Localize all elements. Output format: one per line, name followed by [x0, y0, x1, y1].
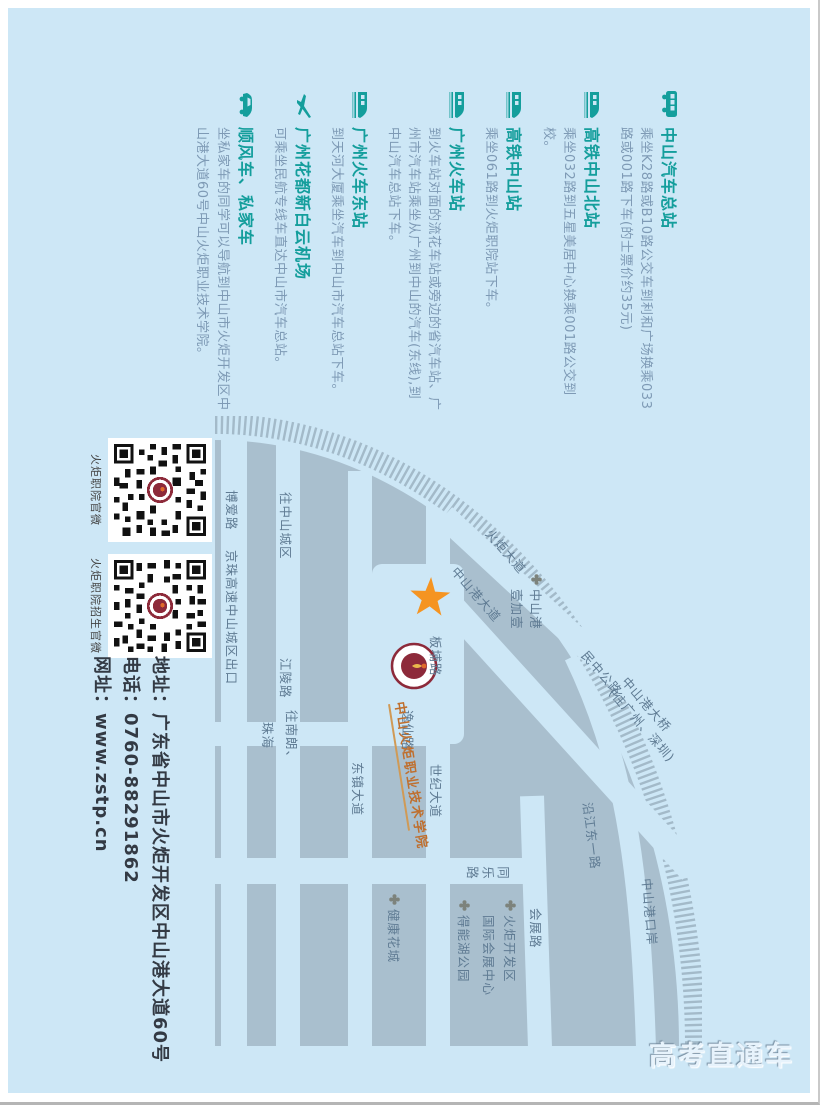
- transport-title: 广州火车东站: [349, 127, 373, 229]
- contact-website: 网址：www.zstp.cn: [87, 656, 116, 1076]
- street-label: 板埔路: [427, 636, 446, 677]
- transport-desc: 乘坐032路到五星美居中心换乘001路公交到校。: [537, 127, 577, 412]
- transport-title: 广州火车站: [446, 127, 470, 212]
- transport-title: 广州花都新白云机场: [292, 127, 316, 280]
- poi-yijiayi: 中山港 壹加壹: [508, 574, 546, 630]
- transport-section: 广州火车站 到火车站对面的流花车站或旁边的省汽车站、广州市汽车站乘坐从广州到中山…: [383, 90, 470, 412]
- transport-title: 高铁中山北站: [581, 127, 605, 229]
- poi-icon: [459, 900, 470, 911]
- poi-health-flower-city: 健康花城: [385, 894, 404, 963]
- poi-label: 得能湖公园: [455, 915, 474, 983]
- qr-label: 火炬职院官微: [88, 438, 104, 542]
- train-icon: [448, 90, 468, 120]
- street-label: 东镇大道: [349, 762, 368, 816]
- poi-label: 健康花城: [385, 909, 404, 963]
- poi-label: 壹加壹: [508, 589, 527, 630]
- transport-section: 顺风车、私家车 坐私家车的同学可以导航到中山市火炬开发区中山港大道60号中山火炬…: [191, 90, 258, 412]
- street-direction-label: 往中山城区: [277, 492, 296, 560]
- qr-item: 火炬职院招生官微: [88, 554, 212, 658]
- street-label: 会展路: [527, 908, 546, 949]
- train-icon: [351, 90, 371, 120]
- qr-codes: 火炬职院官微: [88, 438, 212, 658]
- brochure-page: 中山汽车总站 乘坐K28路或B10路公交车到利和广场换乘033路或001路下车(…: [0, 0, 820, 1105]
- transport-desc: 可乘坐民航专线车直达中山市汽车总站。: [269, 127, 289, 412]
- poi-denenghu-park: 得能湖公园: [455, 900, 474, 983]
- qr-code-admissions-weixin: [108, 554, 212, 658]
- train-icon: [583, 90, 603, 120]
- campus-location-map: 博爱路 京珠高速中山城区出口 往中山城区 江陵路 往南朗、 珠海 东镇大道 世纪…: [210, 416, 702, 1048]
- street-label: 江陵路: [277, 658, 296, 699]
- poi-label: 火炬开发区: [501, 915, 520, 983]
- transport-section: 广州花都新白云机场 可乘坐民航专线车直达中山市汽车总站。: [269, 90, 316, 412]
- transport-section: 高铁中山站 乘坐061路到火炬职院站下车。: [480, 90, 527, 412]
- contact-info: 地址：广东省中山市火炬开发区中山港大道60号 电话：0760-88291862 …: [87, 656, 174, 1076]
- car-icon: [237, 90, 257, 120]
- poi-icon: [389, 894, 400, 905]
- bus-icon: [660, 90, 680, 120]
- transport-section: 高铁中山北站 乘坐032路到五星美居中心换乘001路公交到校。: [537, 90, 604, 412]
- qr-label: 火炬职院招生官微: [88, 554, 104, 658]
- street-label: 博爱路: [223, 490, 242, 531]
- street-label: 同乐路: [464, 862, 511, 881]
- street-direction-label: 往南朗、: [283, 710, 302, 764]
- poi-label: 中山港: [527, 589, 546, 630]
- watermark-gaokao-express: 高考直通车: [649, 1034, 794, 1073]
- street-direction-label: 珠海: [259, 722, 278, 749]
- transport-desc: 坐私家车的同学可以导航到中山市火炬开发区中山港大道60号中山火炬职业技术学院。: [191, 127, 231, 412]
- transport-section: 中山汽车总站 乘坐K28路或B10路公交车到利和广场换乘033路或001路下车(…: [615, 90, 682, 412]
- poi-label: 国际会展中心: [480, 915, 499, 996]
- poi-exhibition-center: 火炬开发区 国际会展中心: [480, 900, 520, 996]
- transport-desc: 到天河大厦乘坐汽车到中山市汽车总站下车。: [326, 127, 346, 412]
- transport-title: 高铁中山站: [503, 127, 527, 212]
- transport-desc: 乘坐061路到火炬职院站下车。: [480, 127, 500, 412]
- contact-phone: 电话：0760-88291862: [116, 656, 145, 1076]
- airplane-icon: [294, 90, 314, 120]
- qr-item: 火炬职院官微: [88, 438, 212, 542]
- transport-desc: 到火车站对面的流花车站或旁边的省汽车站、广州市汽车站乘坐从广州到中山的汽车(东线…: [383, 127, 443, 412]
- transport-directions: 中山汽车总站 乘坐K28路或B10路公交车到利和广场换乘033路或001路下车(…: [181, 90, 682, 412]
- street-label: 京珠高速中山城区出口: [223, 550, 242, 685]
- transport-desc: 乘坐K28路或B10路公交车到利和广场换乘033路或001路下车(的士票价约35…: [615, 127, 655, 412]
- qr-code-official-weixin: [108, 438, 212, 542]
- rotated-content: 中山汽车总站 乘坐K28路或B10路公交车到利和广场换乘033路或001路下车(…: [8, 8, 810, 1093]
- page-background: 中山汽车总站 乘坐K28路或B10路公交车到利和广场换乘033路或001路下车(…: [8, 8, 810, 1093]
- poi-icon: [531, 574, 542, 585]
- street-label: 世纪大道: [427, 764, 446, 818]
- transport-title: 顺风车、私家车: [235, 127, 259, 246]
- transport-title: 中山汽车总站: [658, 127, 682, 229]
- train-icon: [505, 90, 525, 120]
- contact-address: 地址：广东省中山市火炬开发区中山港大道60号: [145, 656, 174, 1076]
- transport-section: 广州火车东站 到天河大厦乘坐汽车到中山市汽车总站下车。: [326, 90, 373, 412]
- poi-icon: [505, 900, 516, 911]
